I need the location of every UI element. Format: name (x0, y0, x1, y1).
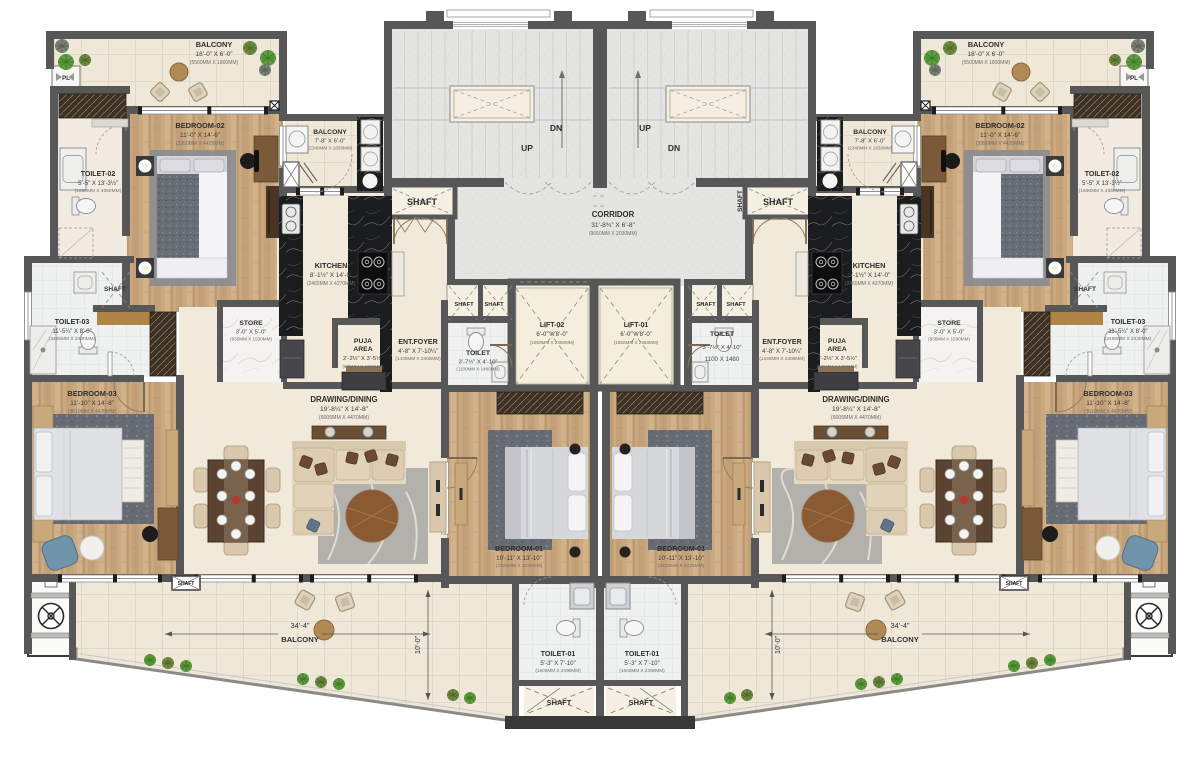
svg-text:PUJA: PUJA (828, 338, 846, 345)
svg-text:(5500MM X 1800MM): (5500MM X 1800MM) (962, 60, 1011, 66)
svg-text:BEDROOM-02: BEDROOM-02 (175, 121, 224, 130)
svg-text:6’-0” X 8’-0”: 6’-0” X 8’-0” (620, 332, 651, 338)
svg-text:ENT.FOYER: ENT.FOYER (762, 339, 801, 346)
svg-text:(1430MM X 2400MM): (1430MM X 2400MM) (759, 356, 805, 361)
svg-text:TOILET-01: TOILET-01 (541, 651, 576, 658)
svg-text:BALCONY: BALCONY (281, 635, 319, 644)
svg-text:(3350MM X 4425MM): (3350MM X 4425MM) (176, 141, 225, 147)
svg-text:11’-10” X 14’-8”: 11’-10” X 14’-8” (1086, 400, 1130, 407)
svg-text:UP: UP (521, 143, 533, 153)
svg-text:KITCHEN: KITCHEN (315, 261, 348, 270)
svg-text:5’-5” X 13’-3½”: 5’-5” X 13’-3½” (78, 180, 118, 187)
svg-text:SHAFT: SHAFT (726, 302, 746, 308)
svg-text:(3325MM X 4225MM): (3325MM X 4225MM) (658, 563, 705, 569)
svg-text:3’-7½” X 4’-10”: 3’-7½” X 4’-10” (459, 359, 498, 366)
svg-text:DN: DN (668, 143, 680, 153)
svg-text:(2465MM X 4270MM): (2465MM X 4270MM) (845, 281, 894, 287)
svg-text:BALCONY: BALCONY (313, 129, 347, 136)
svg-text:BALCONY: BALCONY (968, 40, 1005, 49)
svg-text:(3610MM X 4470MM): (3610MM X 4470MM) (68, 409, 117, 415)
svg-text:BEDROOM-01: BEDROOM-01 (495, 544, 543, 553)
svg-text:10’-11” X 13’-10”: 10’-11” X 13’-10” (658, 555, 704, 562)
svg-text:5’-3” X 7’-10”: 5’-3” X 7’-10” (540, 660, 575, 667)
svg-text:SHAFT: SHAFT (547, 698, 572, 707)
svg-text:PL: PL (62, 76, 70, 82)
svg-text:19’-8¼” X 14’-8”: 19’-8¼” X 14’-8” (320, 406, 368, 413)
svg-text:(6005MM X 4470MM): (6005MM X 4470MM) (831, 415, 881, 421)
svg-text:(1600MM X 2390MM): (1600MM X 2390MM) (619, 668, 665, 673)
svg-text:KITCHEN: KITCHEN (853, 261, 886, 270)
svg-text:SHAFT: SHAFT (104, 286, 126, 293)
svg-text:TOILET-02: TOILET-02 (1085, 171, 1120, 178)
svg-text:(1650MM X 4050MM): (1650MM X 4050MM) (1079, 188, 1126, 194)
svg-text:DRAWING/DINING: DRAWING/DINING (310, 395, 377, 404)
svg-text:2’-2½” X 3’-5½”: 2’-2½” X 3’-5½” (817, 355, 857, 362)
svg-text:STORE: STORE (239, 320, 263, 327)
svg-text:(3325MM X 4225MM): (3325MM X 4225MM) (496, 563, 543, 569)
svg-text:(3485MM X 2430MM): (3485MM X 2430MM) (1105, 336, 1152, 342)
svg-text:1100 X 1480: 1100 X 1480 (705, 356, 740, 363)
svg-text:(675MM X 1050MM): (675MM X 1050MM) (816, 364, 858, 369)
svg-text:SHAFT: SHAFT (407, 197, 437, 207)
svg-text:SHAFT: SHAFT (696, 302, 716, 308)
svg-text:(935MM X 1530MM): (935MM X 1530MM) (928, 337, 970, 342)
svg-text:11’-5¼” X 8’-0”: 11’-5¼” X 8’-0” (1108, 329, 1147, 335)
svg-text:(9660MM X 2030MM): (9660MM X 2030MM) (589, 231, 638, 237)
svg-text:SHAFT: SHAFT (484, 302, 504, 308)
svg-text:10’-0”: 10’-0” (415, 635, 422, 654)
svg-text:(5500MM X 1800MM): (5500MM X 1800MM) (190, 60, 239, 66)
svg-text:TOILET-01: TOILET-01 (625, 651, 660, 658)
svg-text:TOILET-02: TOILET-02 (81, 171, 116, 178)
svg-text:(3350MM X 4425MM): (3350MM X 4425MM) (976, 141, 1025, 147)
svg-text:SHAFT: SHAFT (1006, 581, 1023, 587)
svg-text:11’-5¼” X 8’-0”: 11’-5¼” X 8’-0” (52, 329, 91, 335)
svg-text:34’-4”: 34’-4” (891, 621, 910, 630)
svg-text:BEDROOM-03: BEDROOM-03 (1083, 389, 1132, 398)
svg-text:AREA: AREA (827, 346, 846, 353)
svg-text:SHAFT: SHAFT (1074, 286, 1096, 293)
svg-text:SHAFT: SHAFT (629, 698, 654, 707)
svg-text:31’-8¾” X 6’-8”: 31’-8¾” X 6’-8” (591, 222, 635, 229)
svg-text:SHAFT: SHAFT (737, 190, 744, 212)
svg-text:(935MM X 1530MM): (935MM X 1530MM) (230, 337, 272, 342)
svg-text:ENT.FOYER: ENT.FOYER (398, 339, 437, 346)
svg-text:6’-0” X 8’-0”: 6’-0” X 8’-0” (536, 332, 567, 338)
svg-text:10’-11” X 13’-10”: 10’-11” X 13’-10” (496, 555, 542, 562)
svg-text:CORRIDOR: CORRIDOR (592, 210, 635, 219)
svg-text:(2340MM X 1830MM): (2340MM X 1830MM) (848, 146, 893, 151)
svg-text:4’-8” X 7’-10¼”: 4’-8” X 7’-10¼” (762, 349, 802, 355)
svg-text:(2465MM X 4270MM): (2465MM X 4270MM) (307, 281, 356, 287)
svg-text:BEDROOM-03: BEDROOM-03 (67, 389, 116, 398)
svg-text:BALCONY: BALCONY (196, 40, 233, 49)
svg-text:8’-1½” X 14’-0”: 8’-1½” X 14’-0” (848, 271, 890, 279)
svg-text:PL: PL (1130, 76, 1138, 82)
svg-text:11’-0” X 14’-6”: 11’-0” X 14’-6” (180, 132, 220, 139)
svg-text:(1850MM X 2450MM): (1850MM X 2450MM) (530, 340, 575, 345)
svg-text:BALCONY: BALCONY (881, 635, 919, 644)
svg-text:(1600MM X 2390MM): (1600MM X 2390MM) (535, 668, 581, 673)
svg-text:AREA: AREA (353, 346, 372, 353)
svg-text:TOILET: TOILET (710, 331, 735, 338)
svg-text:(2340MM X 1830MM): (2340MM X 1830MM) (308, 146, 353, 151)
svg-text:LIFT-01: LIFT-01 (624, 322, 649, 329)
svg-text:SHAFT: SHAFT (763, 197, 793, 207)
svg-text:TOILET: TOILET (466, 350, 491, 357)
svg-text:2’-2½” X 3’-5½”: 2’-2½” X 3’-5½” (343, 355, 383, 362)
svg-text:10’-0”: 10’-0” (775, 635, 782, 654)
svg-text:8’-1½” X 14’-0”: 8’-1½” X 14’-0” (310, 271, 352, 279)
svg-text:18’-0” X 6’-0”: 18’-0” X 6’-0” (968, 51, 1005, 58)
svg-text:11’-0” X 14’-6”: 11’-0” X 14’-6” (980, 132, 1020, 139)
svg-text:18’-0” X 6’-0”: 18’-0” X 6’-0” (196, 51, 233, 58)
svg-text:5’-5” X 13’-3½”: 5’-5” X 13’-3½” (1082, 180, 1122, 187)
svg-text:3’-7½” X 4’-10”: 3’-7½” X 4’-10” (703, 344, 742, 351)
svg-text:LIFT-02: LIFT-02 (540, 322, 565, 329)
svg-text:(1100MM X 1480MM): (1100MM X 1480MM) (456, 367, 500, 372)
svg-text:SHAFT: SHAFT (454, 302, 474, 308)
svg-text:7’-8” X 6’-0”: 7’-8” X 6’-0” (855, 139, 886, 145)
svg-text:STORE: STORE (937, 320, 961, 327)
svg-text:(1850MM X 2450MM): (1850MM X 2450MM) (614, 340, 659, 345)
svg-text:BEDROOM-01: BEDROOM-01 (657, 544, 705, 553)
svg-text:TOILET-03: TOILET-03 (55, 319, 90, 326)
svg-text:(3485MM X 2430MM): (3485MM X 2430MM) (49, 336, 96, 342)
svg-text:SHAFT: SHAFT (178, 581, 195, 587)
svg-text:(1650MM X 4050MM): (1650MM X 4050MM) (75, 188, 122, 194)
svg-text:DN: DN (550, 123, 562, 133)
svg-text:(1430MM X 2400MM): (1430MM X 2400MM) (395, 356, 441, 361)
svg-text:DRAWING/DINING: DRAWING/DINING (822, 395, 889, 404)
svg-text:(3610MM X 4470MM): (3610MM X 4470MM) (1084, 409, 1133, 415)
svg-text:TOILET-03: TOILET-03 (1111, 319, 1146, 326)
svg-text:(675MM X 1050MM): (675MM X 1050MM) (342, 364, 384, 369)
svg-text:UP: UP (639, 123, 651, 133)
svg-text:19’-8¼” X 14’-8”: 19’-8¼” X 14’-8” (832, 406, 880, 413)
svg-text:3’-0” X 5’-0”: 3’-0” X 5’-0” (236, 330, 267, 336)
svg-text:BALCONY: BALCONY (853, 129, 887, 136)
svg-text:7’-8” X 6’-0”: 7’-8” X 6’-0” (315, 139, 346, 145)
svg-text:11’-10” X 14’-8”: 11’-10” X 14’-8” (70, 400, 114, 407)
svg-text:(6005MM X 4470MM): (6005MM X 4470MM) (319, 415, 369, 421)
svg-text:4’-8” X 7’-10¼”: 4’-8” X 7’-10¼” (398, 349, 438, 355)
svg-text:34’-4”: 34’-4” (291, 621, 310, 630)
svg-text:PUJA: PUJA (354, 338, 372, 345)
svg-text:3’-0” X 5’-0”: 3’-0” X 5’-0” (934, 330, 965, 336)
svg-text:BEDROOM-02: BEDROOM-02 (975, 121, 1024, 130)
svg-text:5’-3” X 7’-10”: 5’-3” X 7’-10” (624, 660, 659, 667)
